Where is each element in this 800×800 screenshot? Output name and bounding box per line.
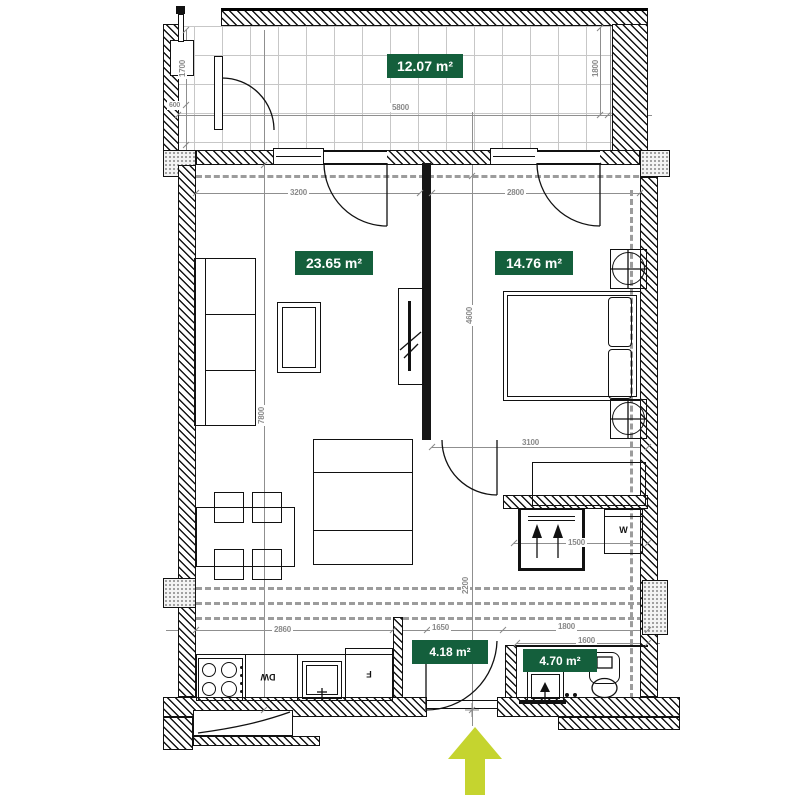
area-badge-bedroom-text: 14.76 m²	[506, 255, 562, 271]
entrance-arrow-icon	[448, 727, 502, 759]
wall-hall-west	[393, 617, 403, 703]
dim-label-balcony-width: 5800	[390, 103, 411, 112]
dim-label-bathroom-inner: 1600	[576, 636, 597, 645]
valve	[573, 693, 577, 697]
exterior-planter-wall	[193, 736, 320, 746]
dishwasher-letters: DW	[261, 672, 276, 682]
area-badge-living-text: 23.65 m²	[306, 255, 362, 271]
wall-left	[178, 165, 196, 697]
dim-label-bathroom-outer: 1800	[556, 622, 577, 631]
burner	[221, 662, 237, 678]
dim-label-bedroom-width: 2800	[505, 188, 526, 197]
dimension-line	[166, 630, 660, 631]
dim-label-middle-upper: 4600	[465, 305, 474, 326]
dim-label-balcony-left-lower: 600	[167, 101, 182, 110]
nightstand-top	[612, 402, 645, 435]
area-badge-balcony-text: 12.07 m²	[397, 58, 453, 74]
sofa-backrest	[205, 258, 206, 426]
drain-pipe-icon	[178, 14, 184, 42]
closet-rail	[528, 516, 575, 521]
balcony-door-panel	[214, 56, 223, 130]
dining-table	[196, 507, 295, 567]
burner	[202, 663, 216, 677]
door-arc-bedroom-entry	[442, 440, 497, 495]
tv-screen	[408, 301, 411, 371]
concrete-column	[640, 150, 670, 177]
area-badge-hallway-text: 4.18 m²	[429, 645, 470, 659]
concrete-column	[642, 580, 668, 635]
dishwasher-label: DW	[246, 668, 290, 686]
dimension-line	[432, 447, 650, 448]
area-badge-bathroom-text: 4.70 m²	[539, 654, 580, 668]
corridor-dashed-line	[196, 602, 652, 605]
kitchen-sink-basin	[306, 665, 338, 695]
wall-bath-north	[517, 645, 648, 647]
stove-knob	[240, 674, 243, 677]
fridge-letter: F	[366, 669, 372, 679]
corridor-dashed-line	[196, 617, 652, 620]
dim-label-balcony-left-upper: 1700	[178, 58, 187, 79]
area-badge-bedroom: 14.76 m²	[495, 251, 573, 275]
door-arc-living-balcony	[324, 163, 387, 226]
dimension-line	[472, 112, 473, 726]
stove-knob	[240, 690, 243, 693]
pillow	[608, 349, 632, 399]
area-badge-hallway: 4.18 m²	[412, 640, 488, 664]
pillow	[608, 297, 632, 347]
dim-label-bedroom-inner: 3100	[520, 438, 541, 447]
daybed-line	[313, 472, 413, 473]
wall-balcony-right	[612, 24, 648, 152]
nightstand-top	[612, 252, 645, 285]
entrance-threshold	[427, 700, 497, 701]
daybed	[313, 439, 413, 565]
burner	[221, 681, 237, 697]
dim-label-living-width: 3200	[288, 188, 309, 197]
tv-stand	[398, 288, 424, 385]
washer-letter: W	[619, 525, 628, 535]
window-living-pane	[276, 156, 321, 157]
exterior-planter-wall	[163, 717, 193, 750]
bathroom-sink-basin	[531, 674, 560, 699]
dim-label-kitchen-width: 2860	[272, 625, 293, 634]
door-opening-living	[324, 151, 387, 164]
sofa-cushion-line	[205, 314, 256, 315]
daybed-line	[313, 530, 413, 531]
entrance-arrow-icon	[465, 757, 485, 795]
drain-pipe-icon	[176, 6, 185, 14]
washer-label: W	[604, 520, 643, 540]
coffee-table-inner	[282, 307, 316, 368]
burner	[202, 682, 216, 696]
stove-knob	[240, 682, 243, 685]
fridge-label: F	[345, 665, 393, 683]
wall-balcony-top	[221, 8, 648, 26]
area-badge-balcony: 12.07 m²	[387, 54, 463, 78]
axis-line	[610, 26, 611, 152]
door-opening-bedroom	[537, 151, 600, 164]
sofa-cushion-line	[205, 370, 256, 371]
concrete-column	[163, 578, 196, 608]
window-bedroom-pane	[493, 156, 535, 157]
counter-divider	[297, 654, 298, 701]
dim-label-middle-lower: 2200	[461, 575, 470, 596]
corridor-dashed-line	[196, 587, 652, 590]
exterior-planter	[193, 710, 293, 736]
dimension-line	[264, 30, 265, 712]
area-badge-living: 23.65 m²	[295, 251, 373, 275]
balcony-tile-grid	[166, 26, 612, 152]
dim-label-closet-width: 1500	[566, 538, 587, 547]
exterior-step	[558, 717, 680, 730]
washing-machine-line	[604, 516, 643, 517]
dimension-line	[432, 193, 640, 194]
wall-bath-west	[505, 645, 517, 699]
area-badge-bathroom: 4.70 m²	[523, 649, 597, 672]
dim-label-apartment-height: 7800	[257, 405, 266, 426]
door-arc-bedroom-balcony	[537, 163, 600, 226]
valve	[565, 693, 569, 697]
sofa	[194, 258, 256, 426]
floor-plan: W DW F	[0, 0, 800, 800]
dimension-line	[163, 115, 652, 116]
dim-label-balcony-depth: 1800	[591, 58, 600, 79]
stove-knob	[240, 666, 243, 669]
bathroom-counter-edge	[519, 700, 566, 704]
entrance-threshold	[427, 708, 497, 709]
wardrobe	[532, 462, 646, 506]
dimension-line	[600, 28, 601, 116]
dim-label-hallway-width: 1650	[430, 623, 451, 632]
